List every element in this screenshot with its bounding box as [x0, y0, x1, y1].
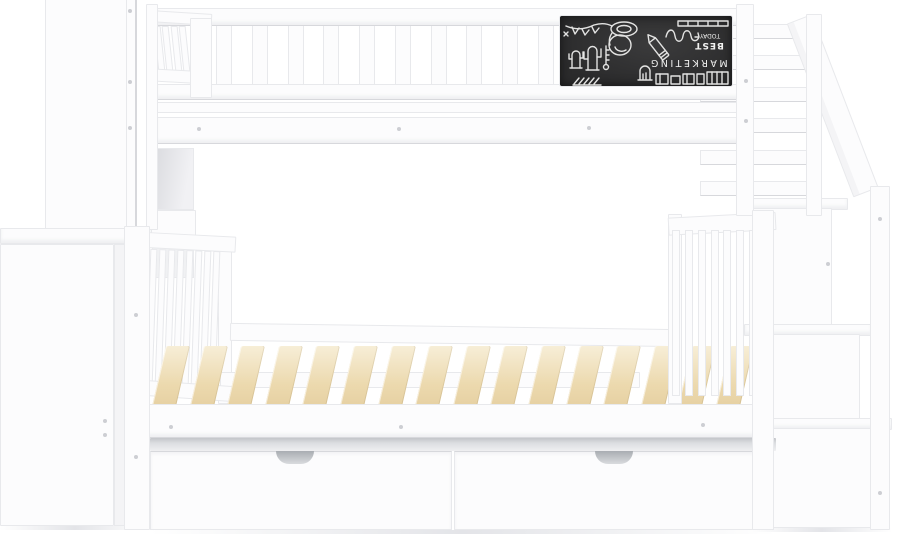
screw-dot	[397, 127, 401, 131]
squiggle-line-icon	[666, 30, 699, 41]
screw-dot	[701, 423, 705, 427]
footboard-spindle	[685, 230, 693, 396]
floor-shadow	[150, 530, 776, 534]
drawer-handle-cutout	[276, 451, 314, 464]
screw-dot	[134, 455, 138, 459]
footboard-spindle	[736, 230, 744, 396]
screw-dot	[399, 425, 403, 429]
guardrail-slat	[359, 26, 375, 85]
screw-dot	[878, 491, 882, 495]
screw-dot	[197, 127, 201, 131]
screw-dot	[128, 9, 132, 13]
bunk-bed-product-photo: MARKETING BEST TODAY	[0, 0, 900, 539]
shelf-tower-upper	[45, 0, 137, 242]
screw-dot	[744, 79, 748, 83]
cactus-icon	[584, 47, 601, 71]
top-bunk-guardrail-slats	[216, 26, 554, 84]
guardrail-slat	[538, 26, 554, 85]
guardrail-slat	[216, 26, 232, 85]
screw-dot	[128, 126, 132, 130]
footboard-spindle	[723, 230, 731, 396]
top-bunk-side-rail	[156, 117, 752, 144]
stair-guardrail-bar	[700, 150, 810, 165]
guardrail-slat	[252, 26, 268, 85]
pencil-icon	[645, 32, 669, 60]
screw-dot	[103, 419, 107, 423]
lower-headboard-front-post	[124, 226, 150, 530]
guardrail-slat	[323, 26, 339, 85]
screw-dot	[128, 80, 132, 84]
footboard-spindle	[711, 230, 719, 396]
chalkboard-panel: MARKETING BEST TODAY	[560, 16, 732, 86]
screw-dot	[134, 313, 138, 317]
screw-dot	[587, 126, 591, 130]
top-bunk-right-post	[736, 4, 754, 216]
drawer-recess-strip	[150, 438, 776, 451]
top-bunk-guardrail-bottom-rail	[156, 84, 750, 100]
guardrail-slat	[288, 26, 304, 85]
footboard-spindle	[672, 230, 680, 396]
book-row-icon	[656, 72, 728, 84]
ruler-bar-icon	[678, 21, 728, 26]
top-bunk-ledge-rail	[156, 102, 750, 113]
chalk-text-best: BEST	[694, 40, 724, 50]
screw-dot	[169, 425, 173, 429]
storage-drawer-left	[150, 451, 452, 530]
footboard-front-post	[752, 210, 774, 530]
storage-drawer-right	[454, 451, 774, 530]
screw-dot	[878, 217, 882, 221]
guardrail-slat	[466, 26, 482, 85]
chalk-text-today: TODAY	[700, 32, 722, 39]
screw-dot	[744, 119, 748, 123]
thermometer-icon	[604, 46, 610, 70]
drawer-handle-cutout	[595, 451, 633, 464]
hatch-band-icon	[573, 78, 601, 85]
top-bunk-left-post	[146, 4, 158, 230]
top-bunk-headboard-slats	[154, 26, 191, 72]
megaphone-bell-icon	[609, 22, 637, 55]
guardrail-end-post	[190, 18, 212, 98]
cactus-icon	[569, 51, 583, 68]
bed-back-rail	[230, 323, 678, 347]
bed-front-rail	[142, 404, 756, 438]
stair-newel-post	[806, 14, 822, 216]
chalk-text-marketing: MARKETING	[648, 57, 727, 68]
chalk-doodles: MARKETING BEST TODAY	[560, 16, 732, 86]
screw-dot	[826, 262, 830, 266]
screw-dot	[103, 433, 107, 437]
guardrail-slat	[431, 26, 447, 85]
tower-panel-seam	[126, 0, 127, 241]
guardrail-slat	[502, 26, 518, 85]
bunting-garland-icon	[564, 24, 612, 36]
stair-guardrail-bar	[700, 181, 810, 196]
stair-right-post	[870, 186, 890, 530]
footboard-spindle	[698, 230, 706, 396]
shelf-cavity-upper	[152, 148, 194, 210]
guardrail-slat	[395, 26, 411, 85]
base-cabinet-front	[0, 244, 114, 526]
